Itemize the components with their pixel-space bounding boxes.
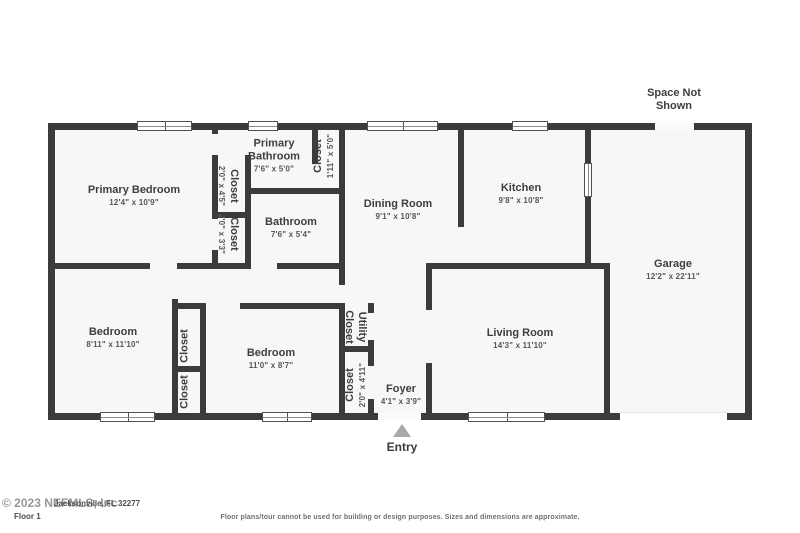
wall: [177, 263, 251, 269]
address-text: Jacksonville, FL 32277: [54, 499, 140, 508]
wall: [277, 263, 339, 269]
window: [262, 412, 312, 422]
floorplan-page: Primary Bedroom12'4" x 10'9"Primary Bath…: [0, 0, 800, 533]
wall: [345, 346, 374, 352]
wall: [368, 399, 374, 420]
garage-door-opening: [620, 412, 727, 421]
window: [512, 121, 548, 131]
wall: [458, 130, 464, 227]
wall: [368, 303, 374, 313]
wall: [426, 363, 432, 420]
wall: [585, 197, 591, 263]
wall: [426, 263, 610, 269]
wall: [172, 366, 206, 372]
wall: [200, 309, 206, 420]
wall: [745, 123, 752, 420]
wall-opening: [655, 123, 694, 130]
window: [137, 121, 192, 131]
wall: [312, 123, 318, 164]
wall-opening: [378, 413, 421, 420]
entry-label: Entry: [387, 440, 418, 454]
window: [468, 412, 545, 422]
wall: [212, 155, 218, 219]
wall: [585, 130, 591, 163]
wall: [604, 269, 610, 420]
wall: [245, 155, 251, 269]
wall: [245, 188, 345, 194]
wall: [339, 123, 345, 285]
window: [584, 163, 592, 197]
wall: [172, 299, 178, 420]
window: [367, 121, 438, 131]
floor-area: [48, 123, 752, 420]
entry-triangle-icon: [393, 424, 411, 437]
disclaimer-text: Floor plans/tour cannot be used for buil…: [0, 514, 800, 521]
wall: [212, 123, 218, 134]
wall: [339, 303, 345, 420]
wall: [426, 269, 432, 310]
wall: [48, 263, 150, 269]
wall: [368, 340, 374, 366]
wall: [240, 303, 345, 309]
window: [100, 412, 155, 422]
space-not-shown-label: Space Not Shown: [645, 87, 703, 113]
wall: [48, 123, 55, 420]
window: [248, 121, 278, 131]
